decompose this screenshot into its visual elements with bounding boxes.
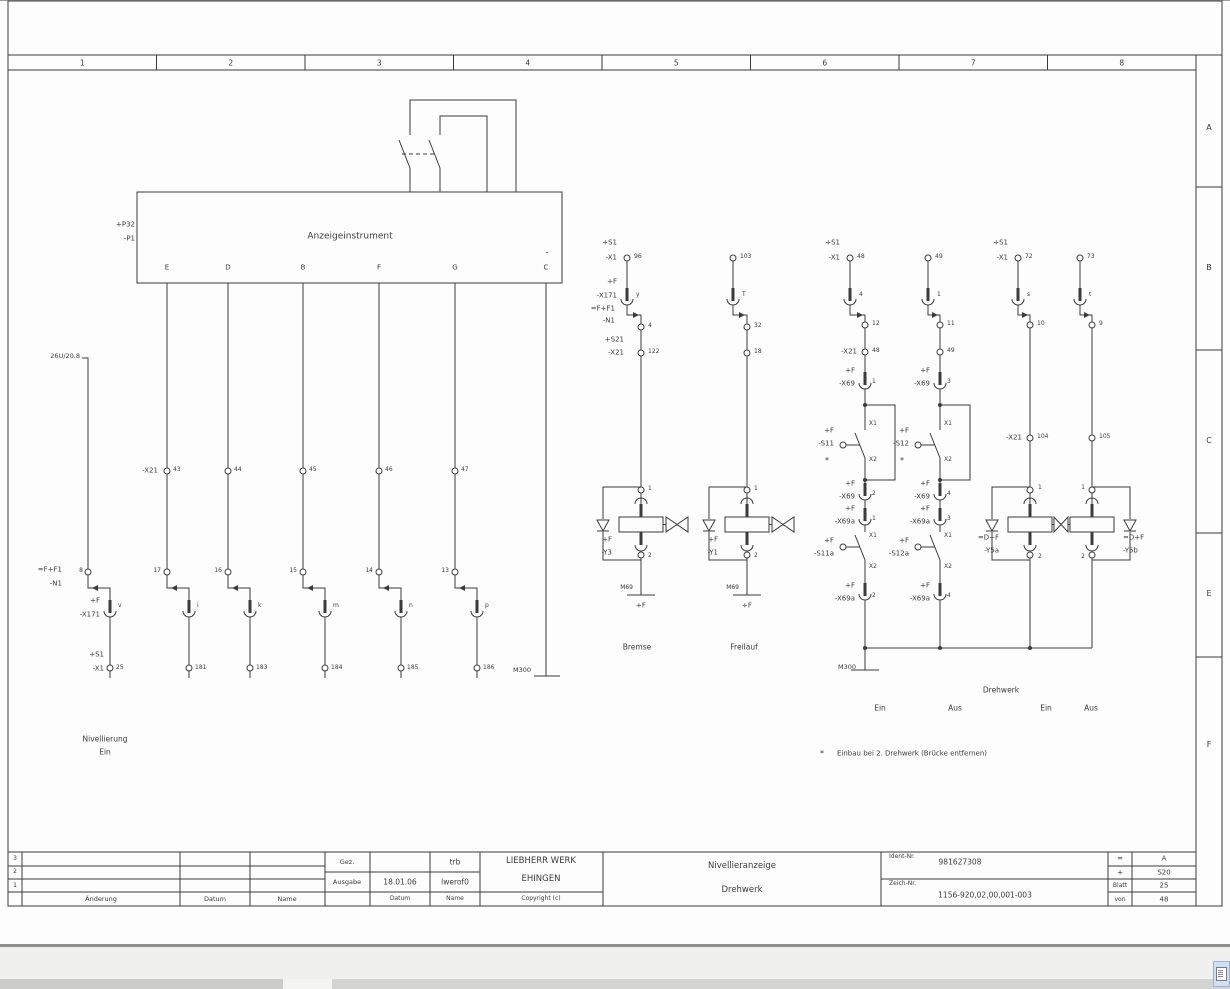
- schematic-label: Freilauf: [730, 643, 757, 651]
- schematic-label: -X1: [997, 255, 1008, 262]
- schematic-label: Ein: [874, 704, 886, 712]
- schematic-label: -P1: [124, 236, 135, 243]
- schematic-sheet: 12345678 ABCEF +P32-P1AnzeigeinstrumentE…: [0, 0, 1230, 946]
- schematic-label: Einbau bei 2. Drehwerk (Brücke entfernen…: [837, 751, 987, 758]
- schematic-label: -X69a: [835, 596, 855, 603]
- schematic-label: +F: [90, 598, 100, 605]
- schematic-label: 25: [116, 665, 124, 671]
- schematic-label: 16: [214, 568, 222, 574]
- schematic-label: -Y5b: [1123, 548, 1138, 555]
- schematic-label: +F: [845, 368, 855, 375]
- column-number: 2: [228, 59, 233, 67]
- schematic-label: Nivellierung: [83, 735, 128, 743]
- taskbar-segment: [0, 979, 283, 989]
- schematic-label: 184: [331, 665, 342, 671]
- schematic-label: -X21: [1006, 435, 1022, 442]
- schematic-label: Anzeigeinstrument: [307, 233, 392, 242]
- schematic-label: Ein: [1040, 704, 1052, 712]
- column-number: 8: [1119, 59, 1124, 67]
- schematic-label: 2: [1081, 554, 1085, 560]
- column-number: 4: [525, 59, 530, 67]
- schematic-label: *: [820, 750, 824, 758]
- schematic-label: 122: [648, 349, 659, 355]
- name-col-header: Name: [446, 896, 464, 902]
- schematic-label: -X1: [93, 666, 104, 673]
- schematic-label: 13: [441, 568, 449, 574]
- name-header: Name: [277, 896, 296, 903]
- column-number: 7: [971, 59, 976, 67]
- schematic-label: X2: [869, 457, 877, 463]
- blatt-label: Blatt: [1113, 883, 1127, 889]
- schematic-label: 15: [289, 568, 297, 574]
- schematic-label: +F: [899, 428, 909, 435]
- schematic-label: M300: [838, 664, 856, 671]
- schematic-label: -X1: [606, 255, 617, 262]
- schematic-label: Ein: [99, 748, 111, 756]
- schematic-label: =D+F: [978, 535, 999, 542]
- revision-row-number: 1: [13, 883, 17, 889]
- schematic-label: -X21: [608, 350, 624, 357]
- company-name: LIEBHERR WERK: [506, 857, 576, 866]
- schematic-label: 10: [1037, 321, 1045, 327]
- taskbar-strip: [0, 979, 1230, 989]
- drawing-subtitle: Drehwerk: [721, 886, 762, 895]
- schematic-label: 96: [634, 254, 642, 260]
- zeich-nr-value: 1156-920,02,00,001-003: [938, 891, 1032, 899]
- schematic-label: Bremse: [623, 643, 652, 651]
- schematic-label: 9: [1099, 321, 1103, 327]
- schematic-label: +F: [920, 506, 930, 513]
- schematic-label: +F: [845, 583, 855, 590]
- taskbar-active-segment: [283, 979, 332, 989]
- gez-name: trb: [450, 858, 461, 866]
- schematic-label: 105: [1099, 434, 1110, 440]
- schematic-label: -Y3: [602, 550, 612, 557]
- schematic-label: -X69: [914, 494, 930, 501]
- column-number: 3: [377, 59, 382, 67]
- ident-nr-label: Ident-Nr.: [889, 854, 915, 860]
- schematic-label: 2: [648, 553, 652, 559]
- schematic-label: -Y1: [708, 550, 718, 557]
- schematic-label: -N1: [603, 318, 615, 325]
- schematic-label: +S1: [89, 652, 104, 659]
- schematic-label: -X171: [597, 293, 617, 300]
- schematic-label: +F: [920, 368, 930, 375]
- schematic-label: 1: [1081, 485, 1085, 491]
- schematic-label: -X69: [839, 494, 855, 501]
- schematic-label: 11: [947, 321, 955, 327]
- ausgabe-label: Ausgabe: [333, 879, 361, 886]
- schematic-label: X1: [869, 533, 877, 539]
- schematic-label: M300: [513, 667, 531, 674]
- schematic-label: +F: [824, 538, 834, 545]
- schematic-label: 12: [872, 321, 880, 327]
- schematic-label: -X21: [841, 349, 857, 356]
- schematic-label: 1: [648, 486, 652, 492]
- schematic-label: =F+F1: [591, 306, 615, 313]
- ident-nr-value: 981627308: [939, 858, 982, 866]
- blatt-value: 25: [1160, 883, 1169, 890]
- tray-document-icon[interactable]: [1213, 961, 1230, 987]
- plus-value: S20: [1157, 870, 1170, 877]
- column-number: 5: [674, 59, 679, 67]
- schematic-label: 4: [947, 491, 951, 497]
- schematic-label: 2: [872, 593, 876, 599]
- schematic-label: B: [301, 265, 306, 272]
- schematic-label: +F: [899, 538, 909, 545]
- ausgabe-datum: 18.01.06: [383, 878, 416, 886]
- schematic-label: +S1: [993, 240, 1008, 247]
- schematic-label: E: [165, 265, 169, 272]
- von-value: 48: [1160, 897, 1169, 904]
- row-letter: F: [1207, 741, 1212, 749]
- schematic-label: 48: [872, 348, 880, 354]
- row-letter: A: [1206, 124, 1211, 132]
- schematic-label: +F: [824, 428, 834, 435]
- schematic-label: X1: [869, 421, 877, 427]
- schematic-label: -S11: [818, 441, 834, 448]
- schematic-label: 4: [947, 593, 951, 599]
- schematic-label: *: [825, 457, 829, 465]
- schematic-label: 43: [173, 467, 181, 473]
- schematic-label: 72: [1025, 254, 1033, 260]
- schematic-label: 14: [365, 568, 373, 574]
- schematic-label: 18: [754, 349, 762, 355]
- schematic-label: 45: [309, 467, 317, 473]
- schematic-label: +S21: [605, 337, 624, 344]
- schematic-label: -X69a: [910, 519, 930, 526]
- pdf-viewer-window: 12345678 ABCEF +P32-P1AnzeigeinstrumentE…: [0, 0, 1230, 989]
- page-navigation-toolbar: ▾: [0, 947, 1230, 980]
- schematic-label: 47: [461, 467, 469, 473]
- schematic-label: 3: [947, 516, 951, 522]
- schematic-label: D: [225, 265, 230, 272]
- schematic-label: T: [742, 292, 746, 298]
- plus-label: +: [1117, 870, 1123, 877]
- schematic-label: 1: [937, 292, 941, 298]
- schematic-label: C: [544, 265, 549, 272]
- schematic-label: +F: [708, 537, 718, 544]
- schematic-label: Aus: [1084, 704, 1098, 712]
- circuit-linework: [0, 0, 1230, 946]
- ausgabe-name: lwerof0: [441, 878, 469, 886]
- datum-col-header: Datum: [390, 896, 410, 902]
- schematic-label: 49: [947, 348, 955, 354]
- schematic-label: 44: [234, 467, 242, 473]
- schematic-label: 8: [79, 568, 83, 574]
- schematic-label: v: [118, 603, 122, 609]
- von-label: von: [1114, 897, 1125, 903]
- schematic-label: s: [1027, 292, 1030, 298]
- schematic-label: 186: [483, 665, 494, 671]
- schematic-label: 49: [935, 254, 943, 260]
- schematic-label: M69: [726, 585, 739, 591]
- schematic-label: -: [545, 249, 548, 258]
- schematic-label: F: [377, 265, 381, 272]
- schematic-label: 1: [872, 516, 876, 522]
- schematic-label: 1: [872, 379, 876, 385]
- schematic-label: +P32: [116, 222, 135, 229]
- schematic-label: -X69a: [835, 519, 855, 526]
- schematic-label: n: [409, 603, 413, 609]
- eq-value: A: [1162, 856, 1167, 863]
- schematic-label: 181: [195, 665, 206, 671]
- schematic-label: -X69: [839, 381, 855, 388]
- schematic-label: X2: [869, 564, 877, 570]
- schematic-label: 4: [648, 323, 652, 329]
- schematic-label: +F: [602, 537, 612, 544]
- schematic-label: 103: [740, 254, 751, 260]
- row-letter: C: [1206, 437, 1212, 445]
- schematic-label: 32: [754, 323, 762, 329]
- schematic-label: *: [900, 457, 904, 465]
- company-city: EHINGEN: [522, 875, 561, 884]
- column-number: 1: [80, 59, 85, 67]
- schematic-label: 73: [1087, 254, 1095, 260]
- schematic-label: i: [197, 603, 199, 609]
- schematic-label: -S12: [893, 441, 909, 448]
- schematic-label: 2: [1038, 554, 1042, 560]
- schematic-label: X2: [944, 564, 952, 570]
- schematic-label: +F: [636, 603, 646, 610]
- schematic-label: Drehwerk: [983, 686, 1019, 694]
- schematic-label: +S1: [825, 240, 840, 247]
- schematic-label: 4: [859, 292, 863, 298]
- schematic-label: M69: [620, 585, 633, 591]
- schematic-label: X1: [944, 421, 952, 427]
- document-glyph-icon: [1216, 967, 1227, 981]
- schematic-label: 17: [153, 568, 161, 574]
- schematic-label: +F: [920, 583, 930, 590]
- column-number: 6: [822, 59, 827, 67]
- schematic-label: 1: [754, 486, 758, 492]
- schematic-label: -N1: [50, 581, 62, 588]
- anderung-header: Änderung: [85, 896, 117, 903]
- schematic-label: -Y5a: [984, 548, 999, 555]
- schematic-label: 48: [857, 254, 865, 260]
- revision-row-number: 2: [13, 869, 17, 875]
- row-letter: E: [1206, 590, 1211, 598]
- schematic-label: +S1: [602, 240, 617, 247]
- schematic-label: -X1: [829, 255, 840, 262]
- schematic-label: G: [452, 265, 457, 272]
- schematic-label: +F: [742, 603, 752, 610]
- copyright-note: Copyright (c): [521, 896, 560, 902]
- schematic-label: -S11a: [814, 551, 834, 558]
- schematic-label: X2: [944, 457, 952, 463]
- schematic-label: 104: [1037, 434, 1048, 440]
- zeich-nr-label: Zeich-Nr.: [889, 881, 916, 887]
- schematic-label: 183: [256, 665, 267, 671]
- schematic-label: t: [1089, 292, 1091, 298]
- schematic-label: -S12a: [889, 551, 909, 558]
- schematic-label: +F: [845, 506, 855, 513]
- row-letter: B: [1206, 264, 1212, 272]
- schematic-label: =D+F: [1123, 535, 1144, 542]
- schematic-label: -X171: [80, 612, 100, 619]
- schematic-label: 26U/20.8: [50, 353, 80, 360]
- datum-header: Datum: [204, 896, 226, 903]
- schematic-label: 3: [947, 379, 951, 385]
- schematic-label: 2: [872, 491, 876, 497]
- schematic-label: p: [485, 603, 489, 609]
- schematic-label: -X21: [142, 468, 158, 475]
- schematic-label: Aus: [948, 704, 962, 712]
- drawing-title: Nivellieranzeige: [708, 862, 776, 871]
- eq-label: =: [1117, 856, 1123, 863]
- revision-row-number: 3: [13, 856, 17, 862]
- schematic-label: -X69: [914, 381, 930, 388]
- schematic-label: m: [333, 603, 339, 609]
- schematic-label: 185: [407, 665, 418, 671]
- schematic-label: =F+F1: [38, 567, 62, 574]
- schematic-label: X1: [944, 533, 952, 539]
- schematic-label: k: [258, 603, 261, 609]
- schematic-label: 2: [754, 553, 758, 559]
- schematic-label: +F: [845, 481, 855, 488]
- schematic-label: +F: [607, 279, 617, 286]
- schematic-label: y: [636, 292, 640, 298]
- gez-label: Gez.: [340, 859, 355, 866]
- schematic-label: 1: [1038, 485, 1042, 491]
- schematic-label: +F: [920, 481, 930, 488]
- schematic-label: 46: [385, 467, 393, 473]
- schematic-label: -X69a: [910, 596, 930, 603]
